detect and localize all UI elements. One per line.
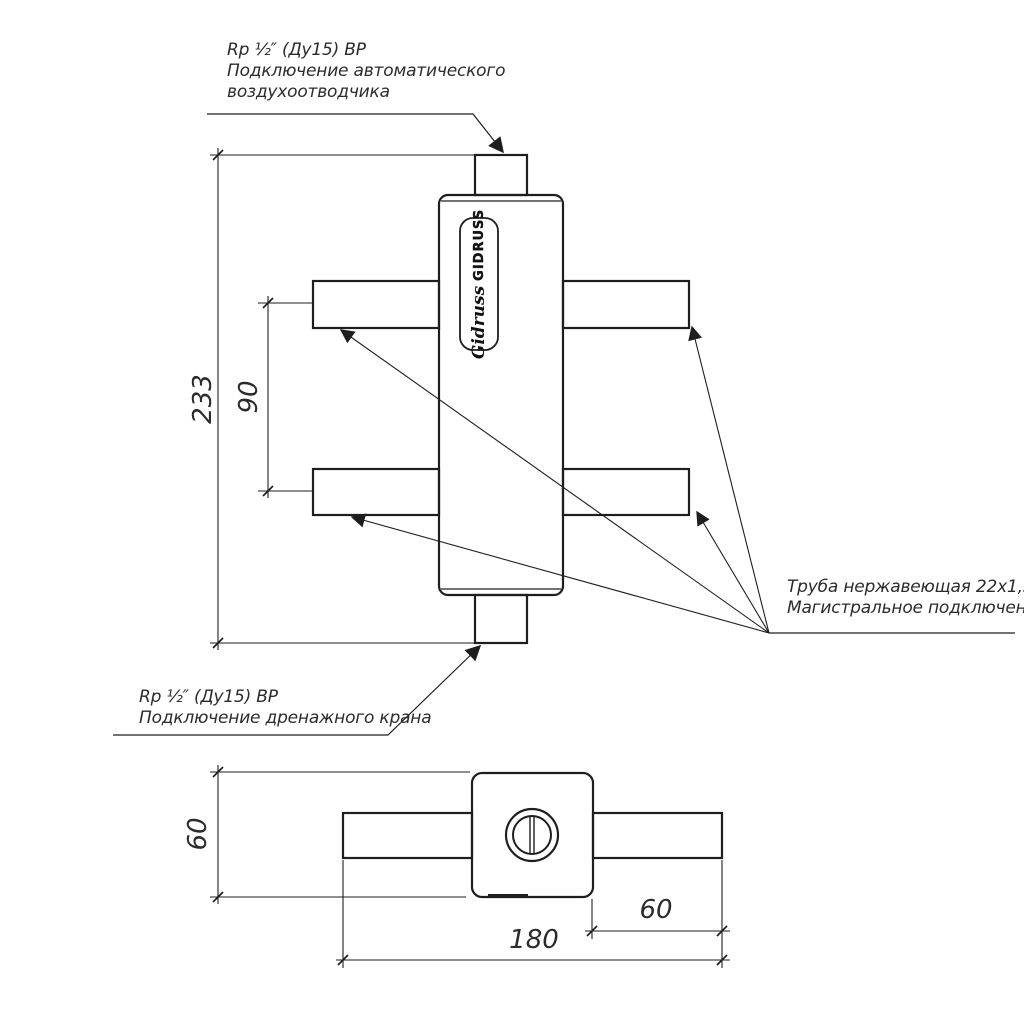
pipe-note: Труба нержавеющая 22х1,5м Магистральное … [787, 577, 1024, 619]
dimension-depth-60 [210, 765, 470, 904]
air-vent-note-line3: воздухоотводчика [227, 82, 505, 103]
drain-note-line2: Подключение дренажного крана [139, 708, 431, 729]
logo-script-text: Gidruss [469, 286, 489, 359]
plan-pipe-left [343, 813, 472, 858]
dimension-90 [258, 296, 313, 498]
logo-text: Gidruss GIDRUSS [469, 209, 489, 359]
dim-label-stub-60: 60 [639, 895, 672, 925]
air-vent-note: Rp ½″ (Ду15) ВР Подключение автоматическ… [227, 40, 505, 103]
leader-air-vent [207, 114, 503, 152]
dim-label-depth-60: 60 [183, 817, 213, 850]
pipe-upper-right [563, 281, 689, 328]
drain-note: Rp ½″ (Ду15) ВР Подключение дренажного к… [139, 687, 431, 729]
plan-pipe-right [593, 813, 722, 858]
plan-body [472, 773, 593, 897]
dim-label-180: 180 [509, 925, 559, 955]
air-vent-nozzle [475, 155, 527, 195]
technical-drawing: Rp ½″ (Ду15) ВР Подключение автоматическ… [0, 0, 1024, 1024]
port-inner-circle [513, 816, 551, 854]
drain-note-line1: Rp ½″ (Ду15) ВР [139, 687, 431, 708]
air-vent-note-line1: Rp ½″ (Ду15) ВР [227, 40, 505, 61]
dim-label-233: 233 [188, 374, 218, 424]
drawing-linework [0, 0, 1024, 1024]
logo-caps-text: GIDRUSS [472, 209, 487, 281]
pipe-note-line2: Магистральное подключение [787, 598, 1024, 619]
pipe-upper-left [313, 281, 439, 328]
front-body [439, 195, 563, 595]
air-vent-note-line2: Подключение автоматического [227, 61, 505, 82]
dim-label-90: 90 [234, 380, 264, 413]
front-view [113, 114, 1015, 735]
pipe-lower-right [563, 469, 689, 515]
pipe-note-line1: Труба нержавеющая 22х1,5м [787, 577, 1024, 598]
drain-nozzle [475, 595, 527, 643]
pipe-lower-left [313, 469, 439, 515]
plan-view [210, 765, 730, 968]
